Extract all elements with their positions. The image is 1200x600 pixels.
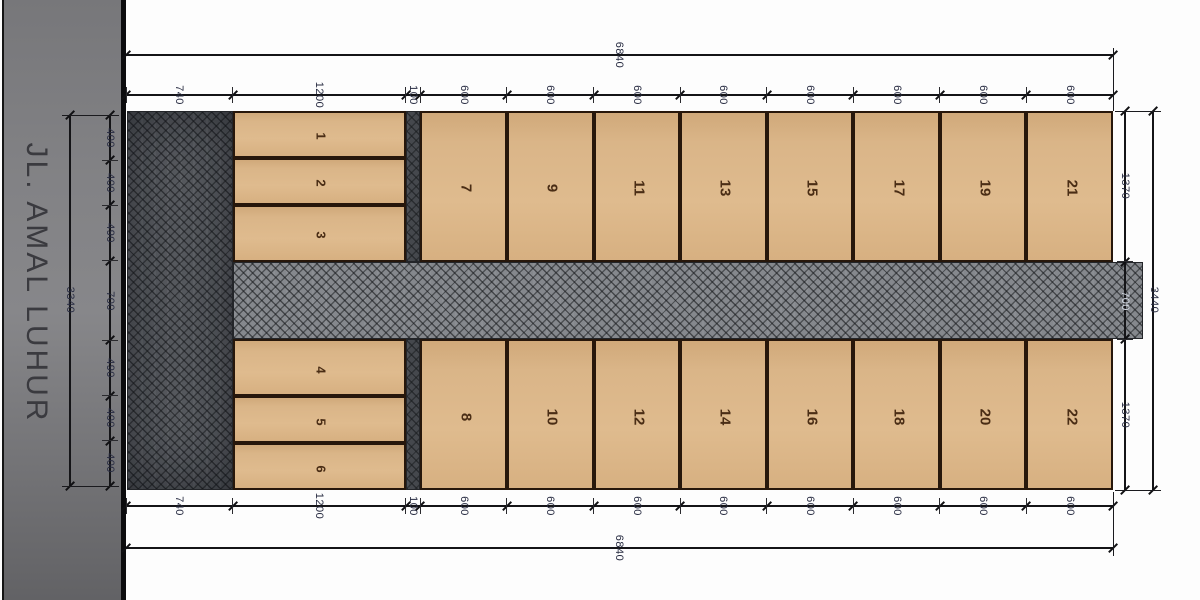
plot-11: 11 [594,111,681,262]
plot-22: 22 [1026,339,1113,490]
dim-segment-label: 600 [804,85,816,105]
plot-number-label: 9 [544,184,561,192]
dim-chain-top [126,94,1113,95]
plot-19: 19 [940,111,1027,262]
dim-segment-label: 600 [717,496,729,516]
dim-extension-stub [766,87,767,103]
dim-segment-label: 600 [717,85,729,105]
dim-extension-stub [680,87,681,103]
dim-extension-stub [232,87,233,103]
plot-number-label: 16 [803,408,820,425]
dim-extension-stub [506,87,507,103]
dim-segment-label: 490 [104,358,116,378]
dim-extension-stub [102,340,118,341]
dim-total-right: 3440 [1148,287,1160,313]
dim-extension-stub [939,87,940,103]
plot-number-label: 14 [717,408,734,425]
dim-segment-label: 100 [407,85,419,105]
dim-extension-stub [506,498,507,514]
dim-total-bottom: 6840 [613,535,625,561]
dim-extension-stub [853,498,854,514]
dim-segment-label: 400 [104,128,116,148]
plot-9: 9 [507,111,594,262]
plot-20: 20 [940,339,1027,490]
dim-segment-label: 1200 [313,82,325,108]
plot-number-label: 15 [803,180,820,197]
dim-segment-label: 400 [104,453,116,473]
dim-segment-label: 600 [458,85,470,105]
plot-5: 5 [233,396,406,443]
dim-total-top: 6840 [613,42,625,68]
dim-segment-label: 1200 [313,493,325,519]
dim-segment-label: 700 [104,291,116,311]
plot-number-label: 5 [314,418,329,425]
plot-number-label: 19 [977,180,994,197]
plot-16: 16 [767,339,854,490]
dim-segment-label: 400 [104,408,116,428]
dim-extension-line [62,486,119,487]
dim-extension-stub [593,87,594,103]
dim-extension-stub [126,87,127,103]
dim-extension-stub [420,498,421,514]
plot-10: 10 [507,339,594,490]
plot-number-label: 22 [1063,408,1080,425]
plot-number-label: 20 [977,408,994,425]
dim-segment-label: 600 [1064,85,1076,105]
dim-segment-label: 600 [544,496,556,516]
dim-segment-label: 600 [977,496,989,516]
dim-segment-label: 600 [804,496,816,516]
plot-number-label: 13 [717,180,734,197]
dim-segment-label: 740 [173,85,185,105]
dim-segment-label: 400 [104,173,116,193]
dim-segment-label: 700 [1119,291,1131,311]
plot-1: 1 [233,111,406,158]
alley-hatch-top [406,111,420,262]
dim-chain-bottom [126,505,1113,506]
plot-21: 21 [1026,111,1113,262]
plot-12: 12 [594,339,681,490]
dim-segment-label: 600 [977,85,989,105]
plot-13: 13 [680,111,767,262]
plot-8: 8 [420,339,507,490]
dim-segment-label: 740 [173,496,185,516]
plot-15: 15 [767,111,854,262]
site-plan-canvas: JL. AMAL LUHUR 1234567911131517192181012… [0,0,1200,600]
dim-extension-stub [102,160,118,161]
dim-extension-line [1113,492,1114,556]
dim-extension-stub [1117,339,1133,340]
plot-17: 17 [853,111,940,262]
plot-number-label: 1 [314,133,329,140]
plot-7: 7 [420,111,507,262]
dim-extension-stub [680,498,681,514]
plot-3: 3 [233,205,406,262]
plot-number-label: 8 [457,412,474,420]
plot-number-label: 21 [1063,180,1080,197]
street-name-label: JL. AMAL LUHUR [19,143,53,424]
plot-number-label: 11 [630,181,647,197]
dim-extension-stub [766,498,767,514]
plot-number-label: 12 [630,408,647,425]
plot-number-label: 17 [890,180,907,197]
dim-extension-stub [853,87,854,103]
dim-extension-line [1115,111,1161,112]
dim-extension-stub [102,260,118,261]
dim-extension-stub [126,498,127,514]
dim-extension-stub [102,205,118,206]
alley-hatch-bottom [406,339,420,490]
dim-extension-line [62,115,119,116]
dim-total-left: 3340 [64,287,76,313]
road-hatch-left [127,111,233,490]
dim-extension-stub [939,498,940,514]
plot-number-label: 18 [890,408,907,425]
dim-segment-label: 600 [458,496,470,516]
dim-segment-label: 600 [631,85,643,105]
dim-segment-label: 1370 [1119,173,1131,199]
dim-segment-label: 600 [891,496,903,516]
plot-number-label: 7 [457,184,474,192]
dim-segment-label: 1370 [1119,401,1131,427]
dim-extension-line [1115,490,1161,491]
road-hatch-central [233,262,1143,339]
dim-segment-label: 600 [891,85,903,105]
dim-extension-stub [1117,261,1133,262]
plot-number-label: 2 [314,180,329,187]
plot-number-label: 6 [314,465,329,472]
plot-18: 18 [853,339,940,490]
plot-number-label: 3 [314,232,329,239]
dim-extension-stub [232,498,233,514]
plot-number-label: 10 [544,408,561,425]
dim-segment-label: 600 [631,496,643,516]
dim-segment-label: 600 [1064,496,1076,516]
dim-segment-label: 100 [407,496,419,516]
plot-2: 2 [233,158,406,205]
plot-number-label: 4 [314,366,329,373]
dim-segment-label: 600 [544,85,556,105]
dim-extension-stub [593,498,594,514]
dim-segment-label: 490 [104,223,116,243]
dim-extension-stub [1026,498,1027,514]
dim-extension-line [1113,48,1114,111]
plot-4: 4 [233,339,406,396]
plot-6: 6 [233,443,406,490]
dim-extension-stub [102,440,118,441]
dim-extension-stub [1026,87,1027,103]
dim-extension-stub [420,87,421,103]
dim-extension-stub [102,395,118,396]
plot-14: 14 [680,339,767,490]
